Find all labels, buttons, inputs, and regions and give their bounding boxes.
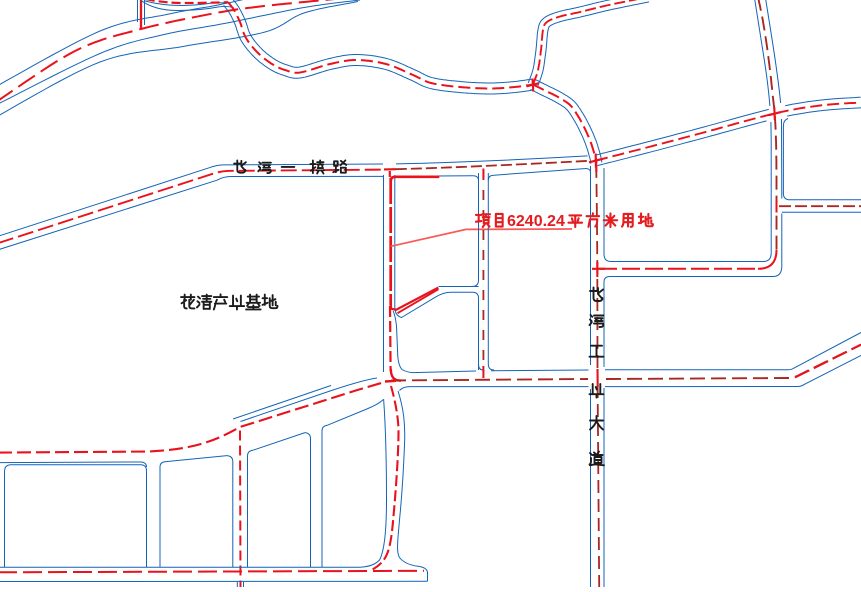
svg-text:6240.24: 6240.24 [507, 213, 565, 230]
